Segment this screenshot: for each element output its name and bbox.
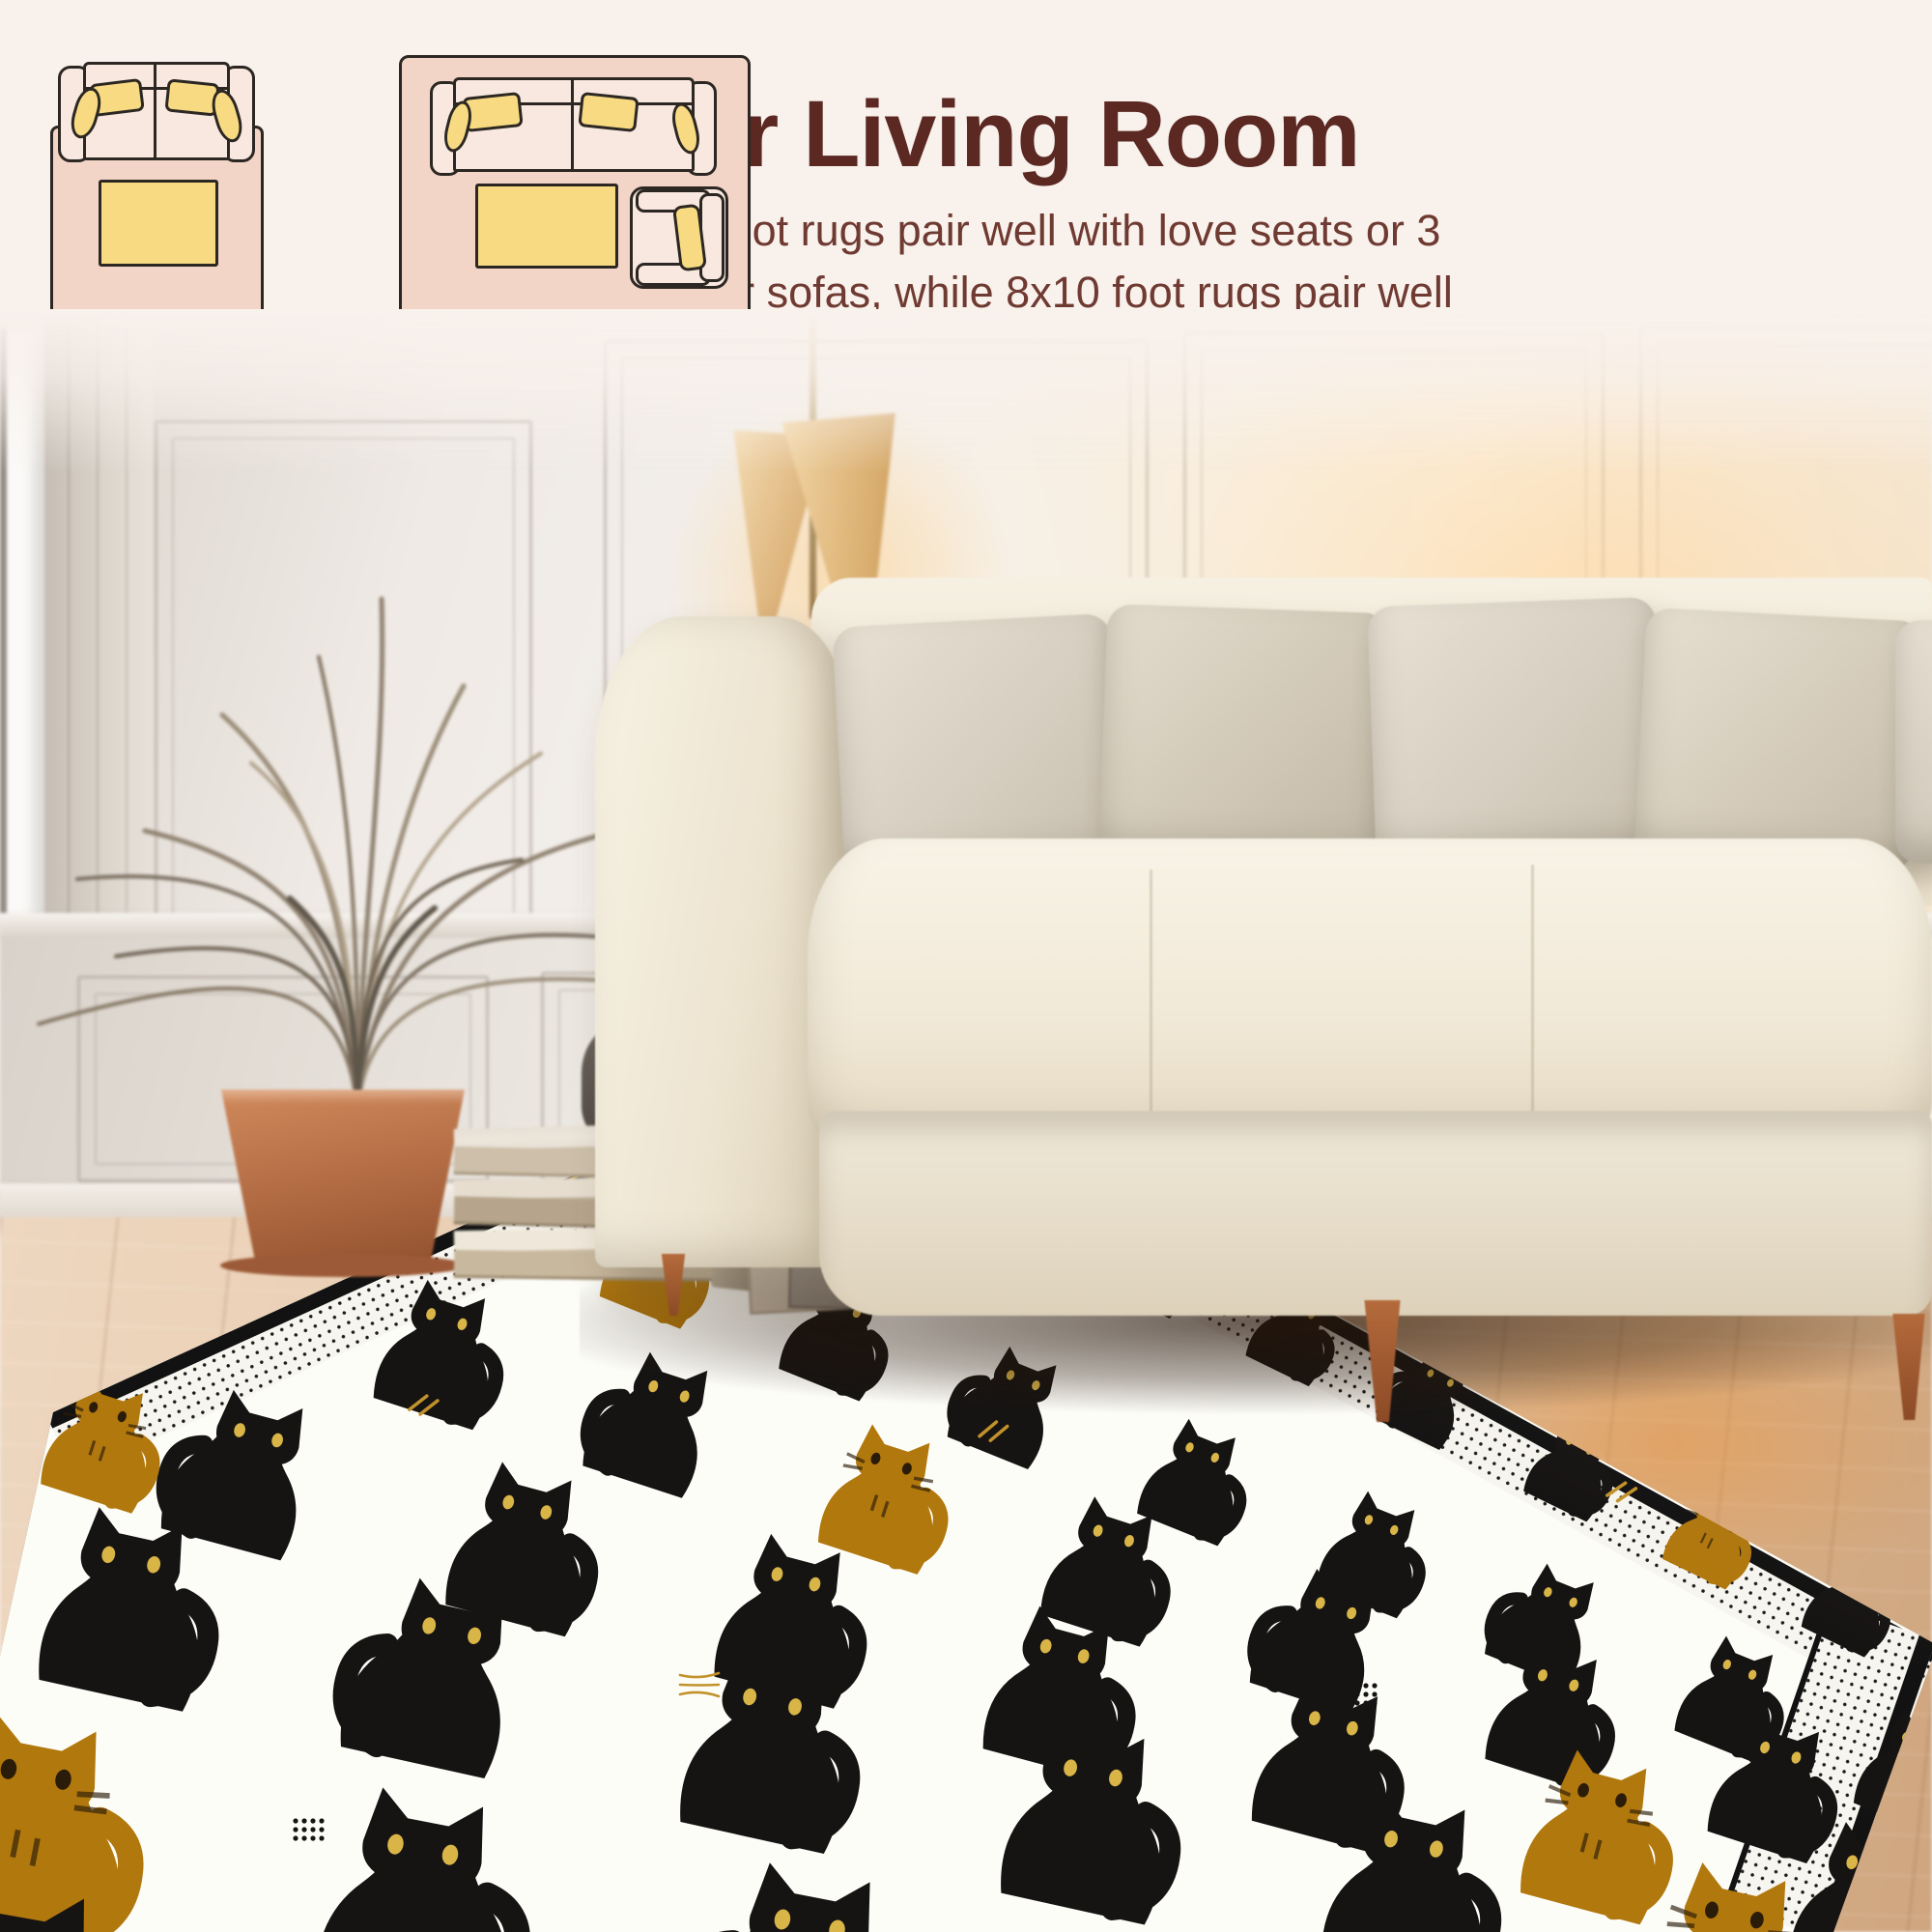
sofa-pillow bbox=[1895, 620, 1932, 864]
sofa-arm bbox=[595, 616, 844, 1267]
sofa bbox=[0, 309, 1932, 1932]
page-title: For Living Room bbox=[630, 80, 1499, 188]
coffee-table-icon bbox=[99, 180, 218, 267]
sofa-pillow bbox=[1098, 604, 1389, 868]
sofa-pillow bbox=[1634, 608, 1924, 873]
rug-product-infographic: For Living Room 5x7 foot rugs pair well … bbox=[0, 0, 1932, 1932]
seat-crease bbox=[1531, 865, 1534, 1130]
living-room-photo bbox=[0, 309, 1932, 1932]
throw-pillow-icon bbox=[164, 78, 219, 116]
sofa-base bbox=[819, 1111, 1932, 1316]
sofa-pillow bbox=[1367, 597, 1663, 866]
throw-pillow-icon bbox=[578, 92, 639, 132]
seat-crease bbox=[1150, 869, 1152, 1130]
coffee-table-icon bbox=[475, 184, 618, 269]
